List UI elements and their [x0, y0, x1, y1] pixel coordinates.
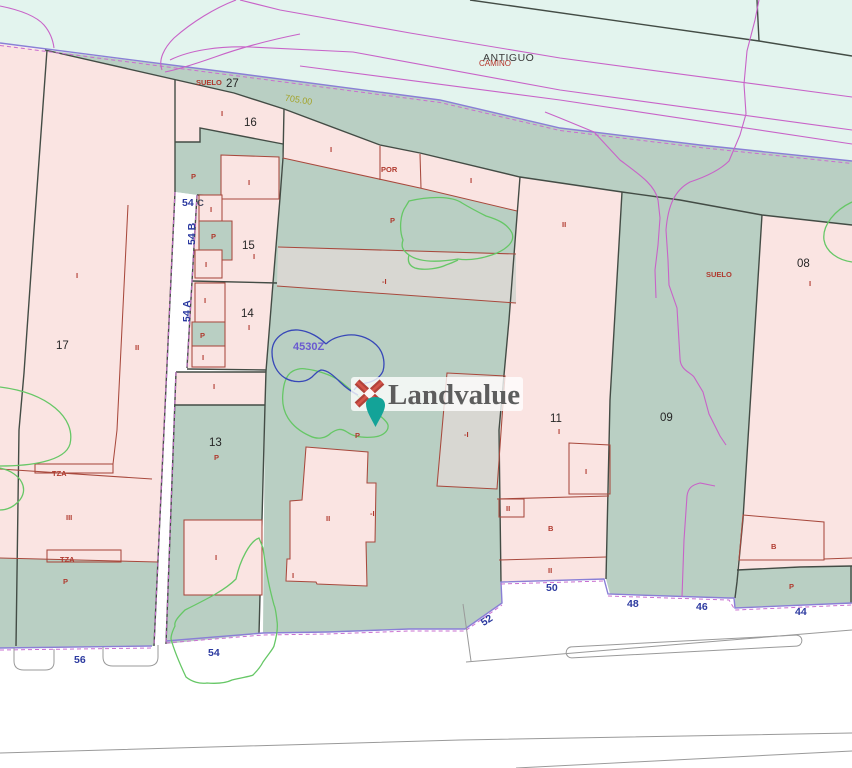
svg-text:I: I [809, 279, 811, 288]
svg-text:III: III [66, 513, 72, 522]
svg-text:II: II [506, 504, 510, 513]
svg-text:46: 46 [696, 601, 708, 613]
svg-text:17: 17 [56, 340, 69, 352]
svg-text:II: II [548, 566, 552, 575]
svg-text:16: 16 [244, 117, 257, 129]
svg-text:I: I [330, 145, 332, 154]
svg-text:II: II [135, 343, 139, 352]
svg-text:-I: -I [382, 277, 387, 286]
svg-text:50: 50 [546, 582, 558, 594]
svg-text:54: 54 [208, 647, 220, 659]
svg-text:I: I [210, 205, 212, 214]
svg-text:POR: POR [381, 165, 398, 174]
svg-text:I: I [248, 323, 250, 332]
svg-text:CAMINO: CAMINO [479, 59, 511, 68]
svg-text:11: 11 [550, 413, 562, 425]
svg-text:54: 54 [182, 197, 194, 209]
svg-text:P: P [211, 232, 216, 241]
svg-text:I: I [76, 271, 78, 280]
svg-text:I: I [292, 571, 294, 580]
svg-text:B: B [771, 542, 777, 551]
svg-text:I: I [248, 178, 250, 187]
svg-text:P: P [200, 331, 205, 340]
svg-text:54 A: 54 A [181, 300, 193, 322]
svg-text:P: P [355, 431, 360, 440]
svg-text:56: 56 [74, 654, 86, 666]
svg-text:TZA: TZA [60, 555, 75, 564]
svg-text:I: I [215, 553, 217, 562]
svg-text:SUELO: SUELO [196, 78, 222, 87]
svg-text:14: 14 [241, 308, 254, 320]
svg-text:I: I [558, 427, 560, 436]
svg-text:P: P [191, 172, 196, 181]
svg-text:48: 48 [627, 598, 639, 610]
svg-text:I: I [213, 382, 215, 391]
svg-text:I: I [585, 467, 587, 476]
svg-text:P: P [390, 216, 395, 225]
svg-text:I: I [221, 109, 223, 118]
svg-text:Landvalue: Landvalue [388, 379, 520, 411]
svg-text:TZA: TZA [52, 469, 67, 478]
svg-text:II: II [326, 514, 330, 523]
svg-text:SUELO: SUELO [706, 270, 732, 279]
svg-text:P: P [789, 582, 794, 591]
svg-text:44: 44 [795, 606, 807, 618]
svg-text:08: 08 [797, 258, 810, 270]
svg-text:I: I [470, 176, 472, 185]
svg-text:09: 09 [660, 412, 673, 424]
svg-text:C: C [197, 198, 204, 209]
svg-text:13: 13 [209, 437, 222, 449]
svg-text:P: P [214, 453, 219, 462]
svg-text:15: 15 [242, 240, 255, 252]
svg-text:P: P [63, 577, 68, 586]
svg-text:27: 27 [226, 78, 239, 90]
svg-text:-I: -I [370, 509, 375, 518]
svg-text:4530Z: 4530Z [293, 341, 324, 353]
svg-text:I: I [204, 296, 206, 305]
svg-text:I: I [253, 252, 255, 261]
svg-text:-I: -I [464, 430, 469, 439]
svg-text:54 B: 54 B [186, 222, 198, 245]
svg-text:II: II [562, 220, 566, 229]
svg-text:B: B [548, 524, 554, 533]
svg-text:I: I [205, 260, 207, 269]
svg-text:I: I [202, 353, 204, 362]
